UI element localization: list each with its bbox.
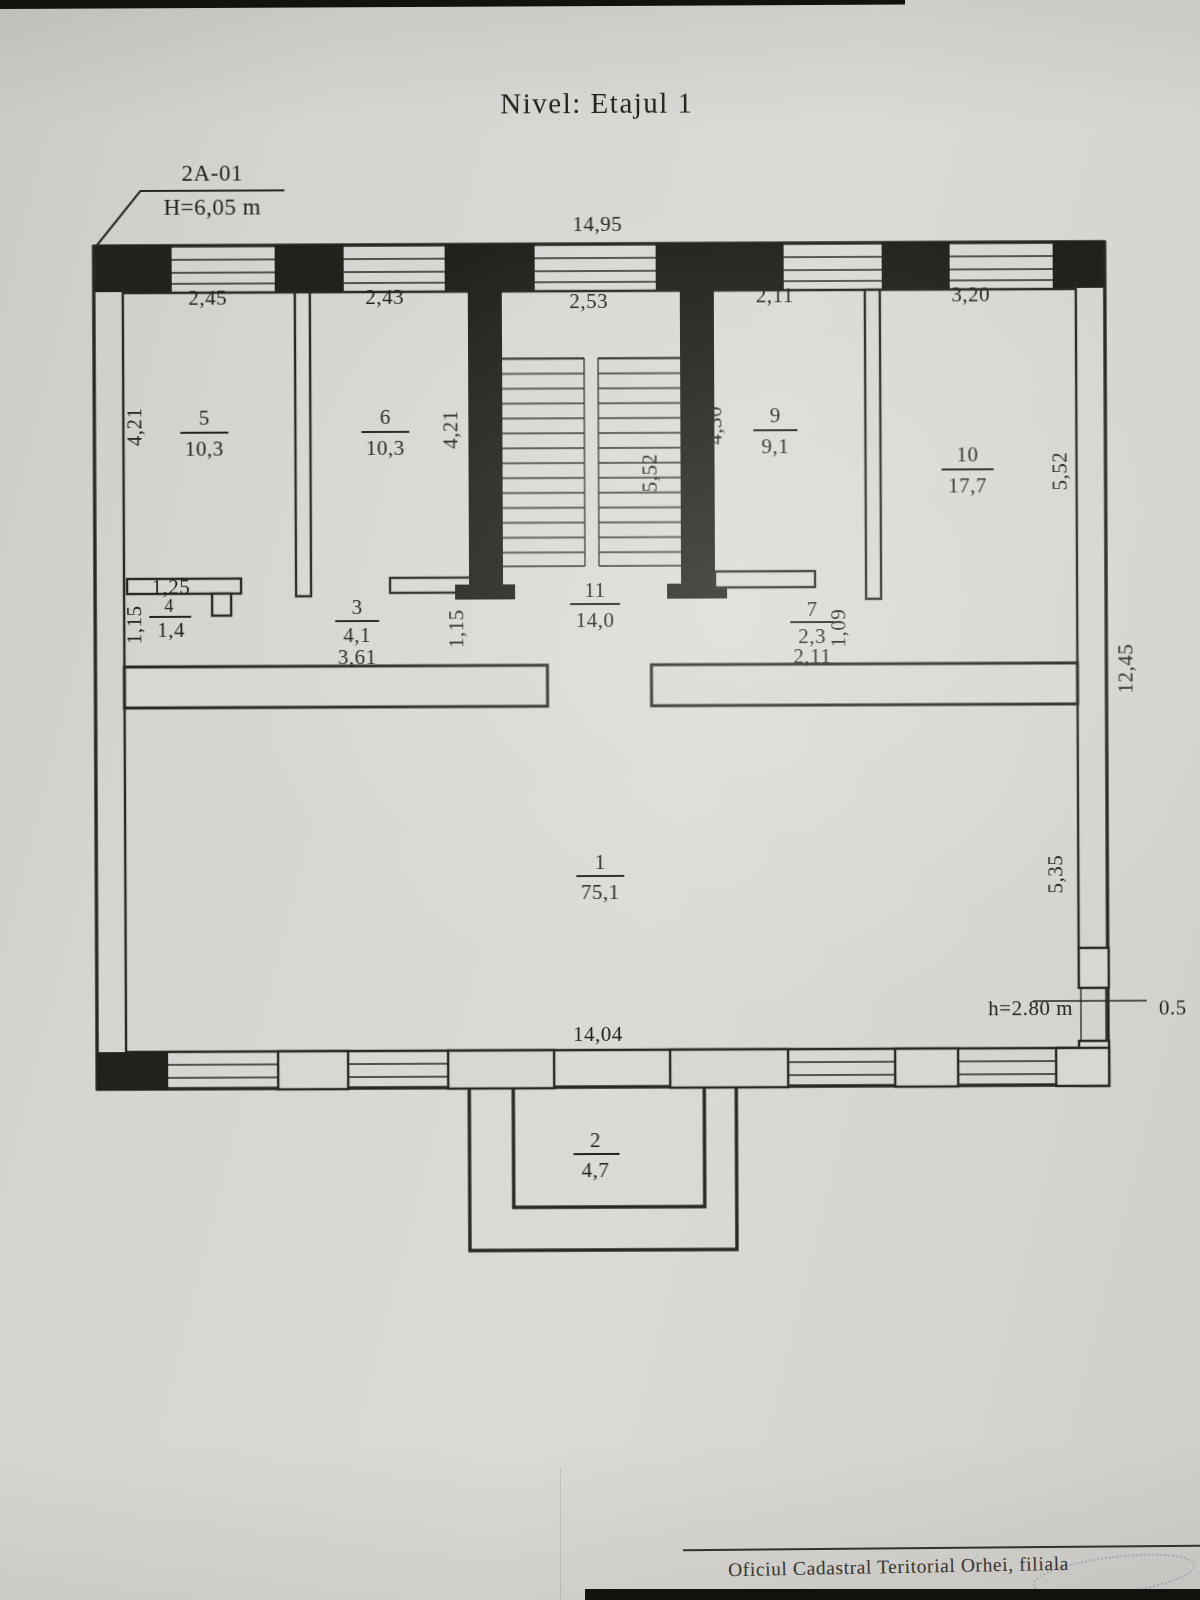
callout-height: H=6,05 m — [164, 194, 262, 219]
room1-number: 1 — [595, 850, 606, 874]
floor-plan-wrap: Nivel: Etajul 1 2A-01 H=6,05 m 14,95 2,4… — [0, 0, 1200, 1600]
room1-area: 75,1 — [581, 880, 620, 904]
dim-stairwell-width: 2,53 — [569, 289, 608, 313]
bottom-pier — [96, 1052, 168, 1090]
dim-top-width: 14,95 — [573, 212, 623, 236]
stairwell-west-wall — [468, 283, 503, 584]
dim-room9-height: 4,30 — [702, 406, 726, 445]
room7-stub-wall — [715, 571, 815, 587]
dim-room4-height: 1,15 — [122, 606, 146, 645]
partition-room5-room6 — [295, 292, 311, 596]
bottom-pier — [670, 1049, 788, 1088]
scan-bottom-edge — [585, 1589, 1200, 1600]
room7-width: 2,11 — [793, 644, 831, 668]
room4-area: 1,4 — [157, 618, 185, 642]
dim-right-upper-height: 5,52 — [1047, 452, 1071, 491]
room6-number: 6 — [380, 405, 391, 429]
dim-room5-height: 4,21 — [122, 408, 146, 447]
room2-number: 2 — [590, 1128, 601, 1152]
corridor-south-wall-left — [124, 665, 547, 708]
right-wall-jamb — [1079, 948, 1109, 988]
stairwell-west-foot — [455, 584, 515, 599]
top-pier — [882, 241, 950, 288]
top-pier — [93, 245, 172, 292]
room11-number: 11 — [584, 578, 605, 602]
bottom-pier — [278, 1051, 348, 1089]
room4-wall-tab — [212, 594, 231, 616]
corridor-south-wall-right — [651, 663, 1077, 706]
partition-room9-room10 — [865, 290, 881, 599]
room7-number: 7 — [807, 597, 818, 621]
bottom-pier — [895, 1048, 958, 1086]
dim-corridor-left-height: 1,15 — [444, 609, 468, 648]
dim-room7-height: 1,09 — [826, 609, 850, 648]
dim-right-total-height: 12,45 — [1113, 644, 1137, 694]
dim-room6-width: 2,43 — [365, 285, 404, 309]
room3-number: 3 — [352, 595, 363, 619]
paper-crease — [560, 1468, 561, 1600]
scanned-page: Nivel: Etajul 1 2A-01 H=6,05 m 14,95 2,4… — [0, 0, 1200, 1600]
dim-bottom-width: 14,04 — [573, 1022, 623, 1046]
callout-code: 2A-01 — [182, 161, 243, 186]
room11-area: 14,0 — [576, 608, 615, 632]
dim-room9-width: 2,11 — [756, 283, 794, 307]
bottom-pier — [448, 1050, 554, 1088]
room2-area: 4,7 — [582, 1158, 610, 1182]
room10-number: 10 — [956, 442, 978, 466]
room5-number: 5 — [199, 406, 210, 430]
dim-room10-width: 3,20 — [951, 282, 990, 306]
floor-plan: Nivel: Etajul 1 2A-01 H=6,05 m 14,95 2,4… — [0, 0, 1200, 1600]
stair-flight-left — [502, 358, 585, 566]
dim-stairwell-height: 5,52 — [637, 453, 661, 492]
door-width: 0.5 — [1159, 995, 1187, 1019]
room9-area: 9,1 — [762, 434, 790, 458]
dim-right-lower-height: 5,35 — [1043, 855, 1067, 894]
door-height-note: h=2.80 m — [988, 996, 1073, 1020]
room9-number: 9 — [770, 403, 781, 427]
dim-room5-width: 2,45 — [188, 286, 227, 310]
level-title: Nivel: Etajul 1 — [500, 87, 693, 120]
room3-width: 3,61 — [338, 645, 377, 669]
room5-area: 10,3 — [185, 437, 224, 461]
top-pier — [1053, 241, 1106, 288]
room3-area: 4,1 — [343, 623, 371, 647]
bottom-pier — [1056, 1048, 1109, 1086]
room6-area: 10,3 — [366, 436, 405, 460]
room4-number: 4 — [164, 596, 174, 616]
room10-area: 17,7 — [948, 473, 987, 497]
top-pier — [275, 244, 344, 291]
dim-room6-height: 4,21 — [438, 410, 462, 449]
